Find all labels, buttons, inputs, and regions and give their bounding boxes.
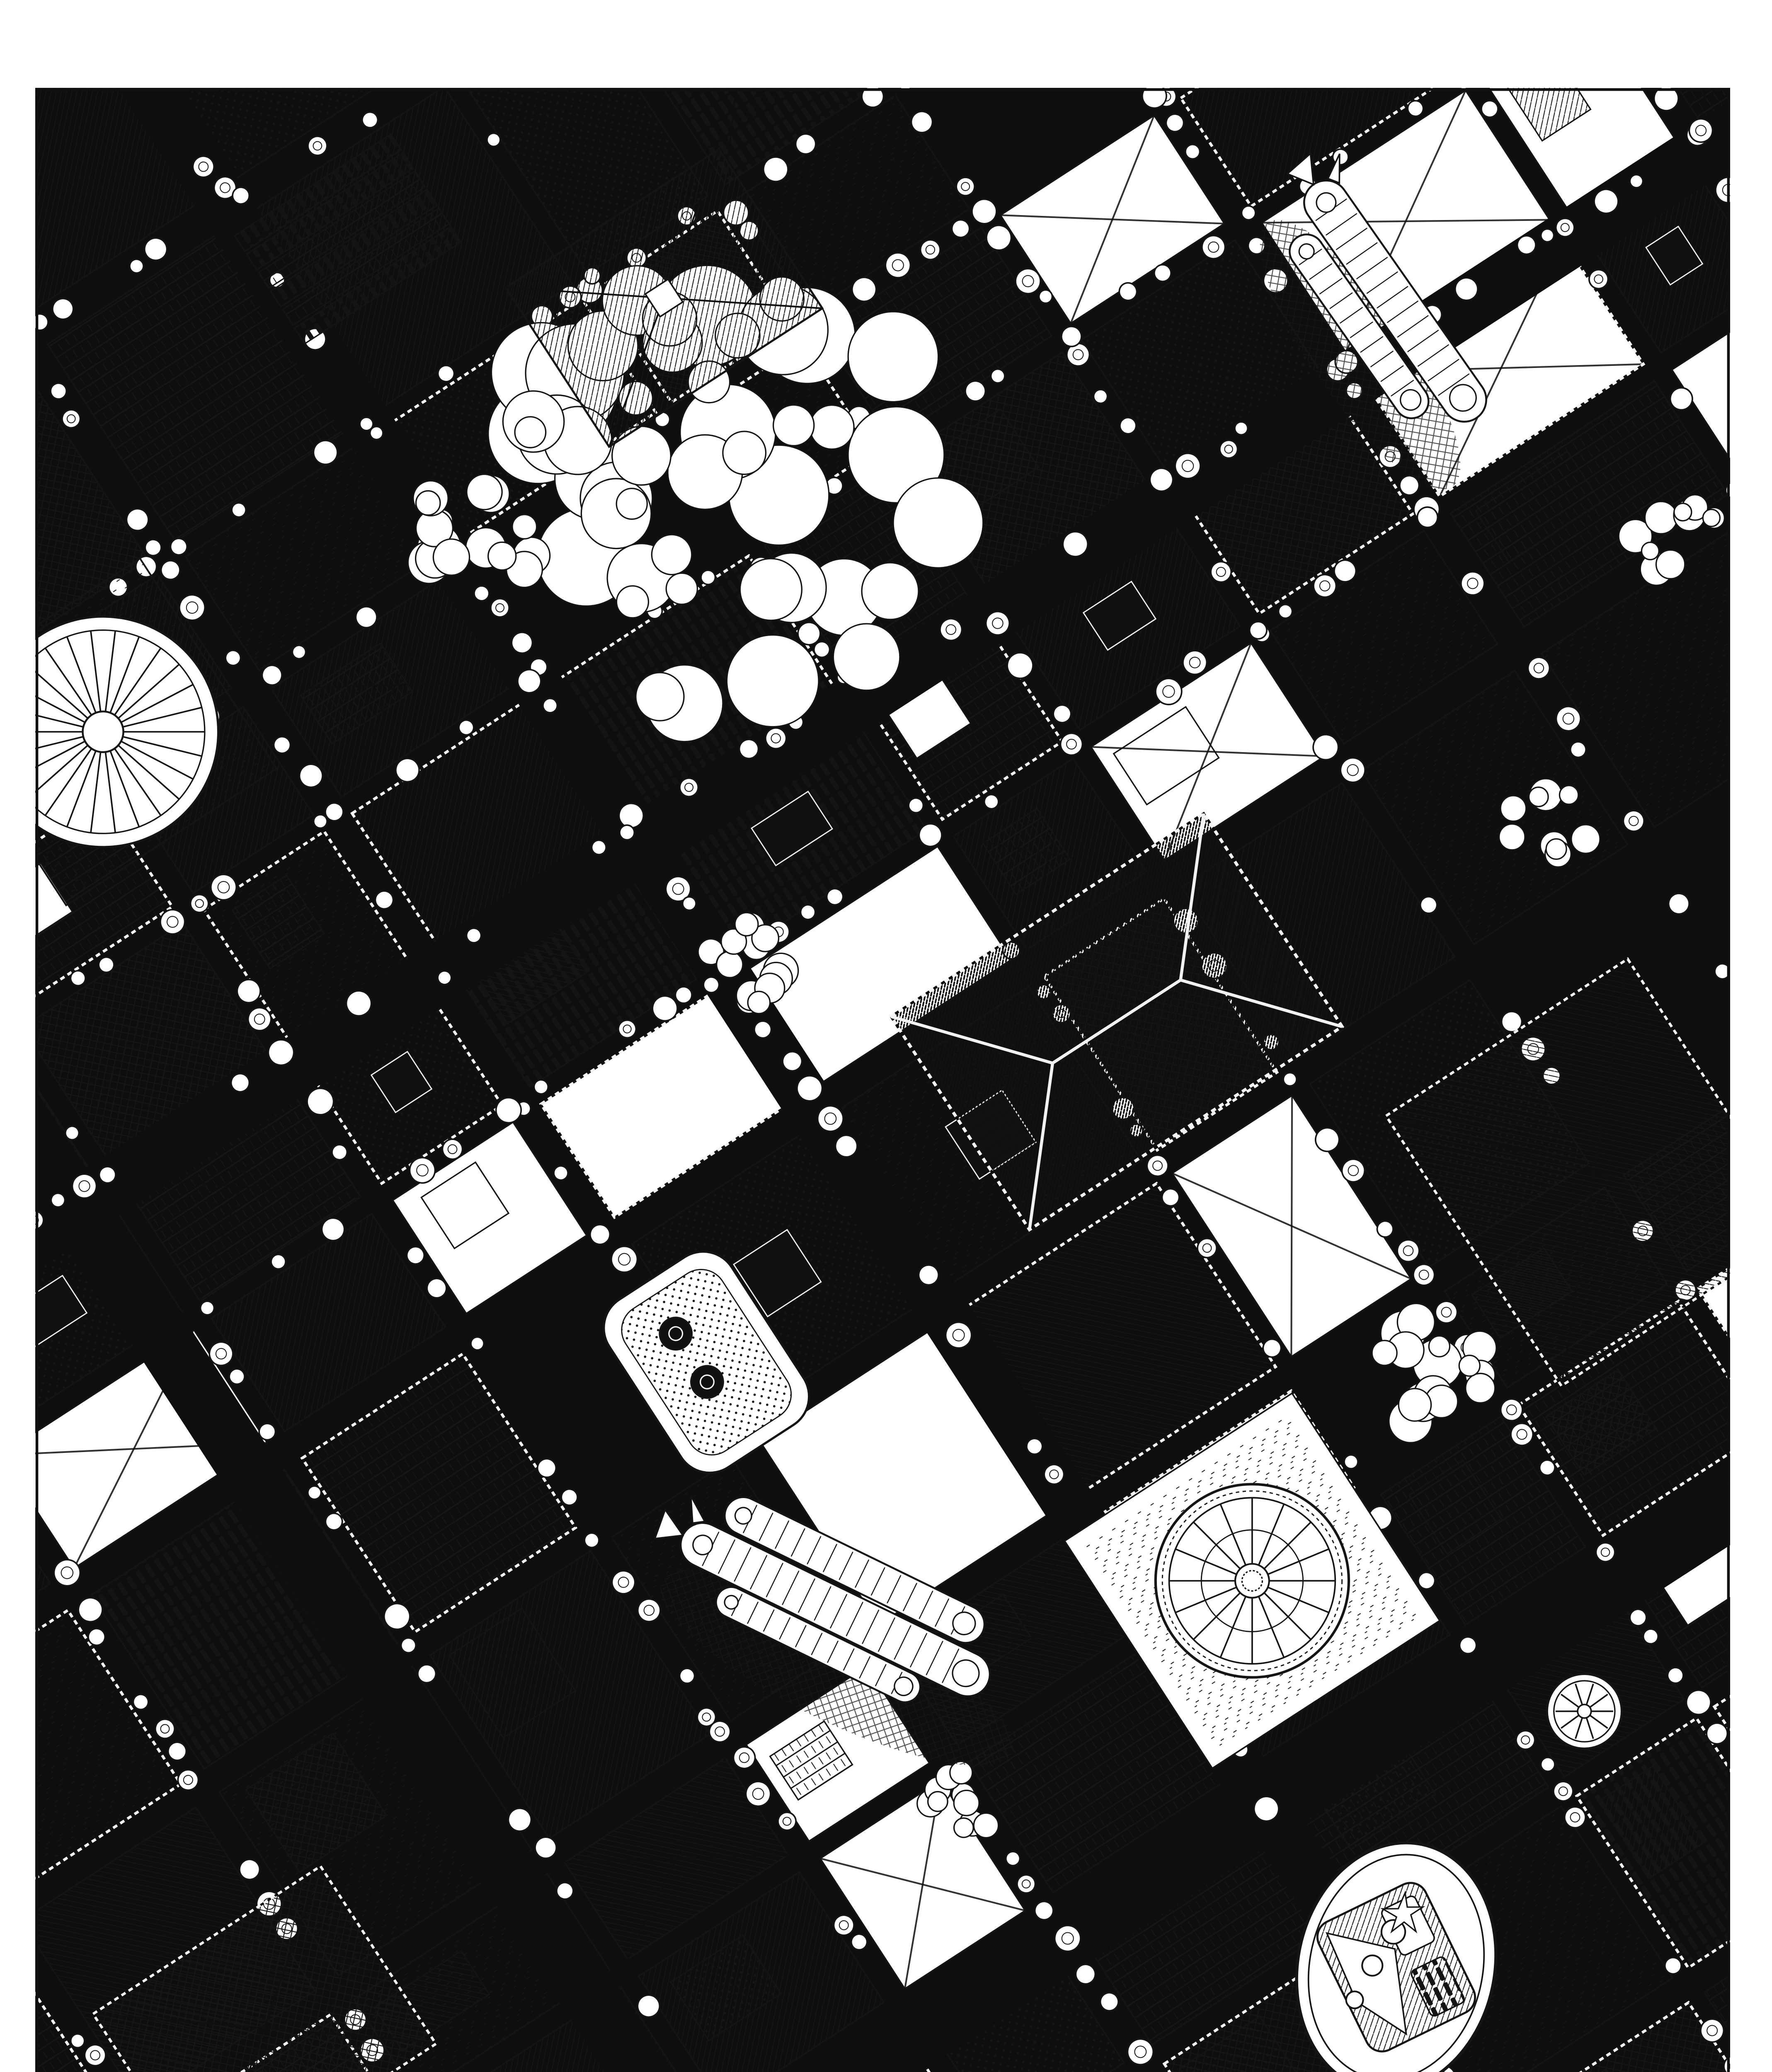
city-map-artwork: DRAWN BY MORGAN GIRVIN (THIS IS A WATERM… [35, 88, 1730, 2072]
poster-page: DRAWN BY MORGAN GIRVIN (THIS IS A WATERM… [0, 0, 1772, 2072]
small-dome-pavilion [1547, 1674, 1622, 1749]
